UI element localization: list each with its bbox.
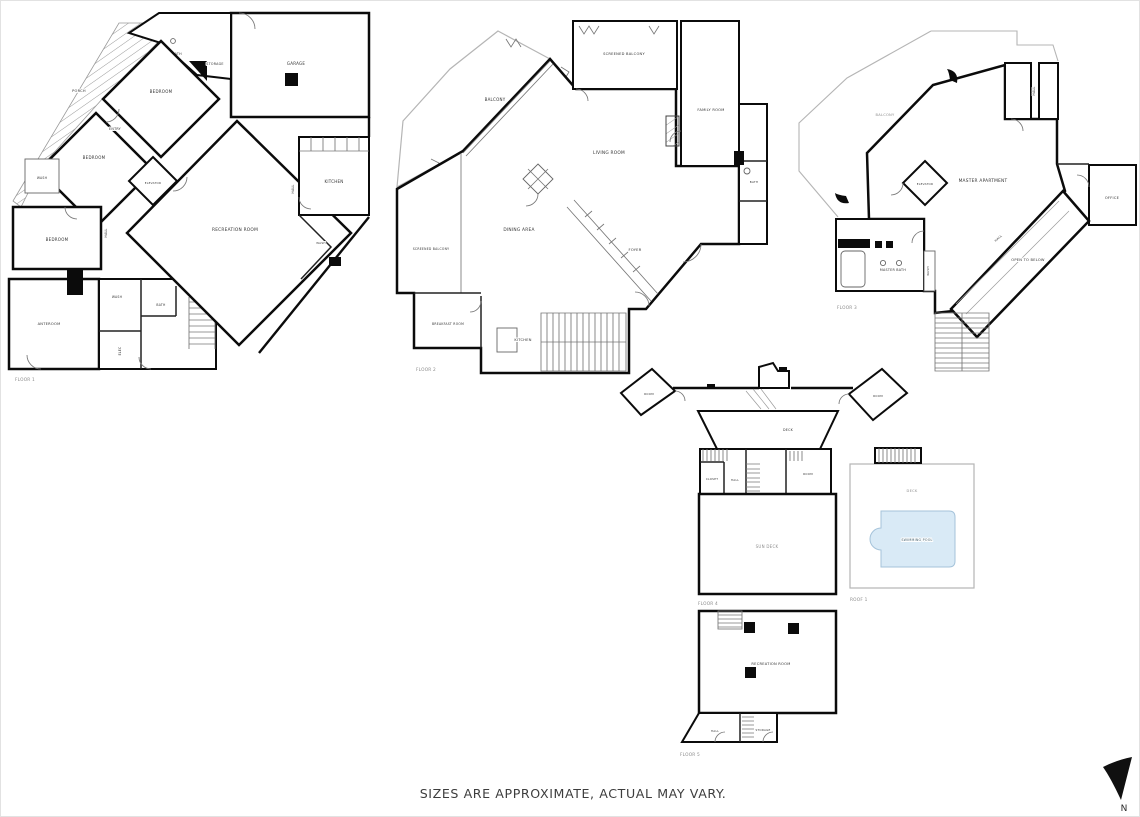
- room-label-wash-upper: WASH: [37, 176, 48, 180]
- column-c: [745, 667, 756, 678]
- room-label-balcony: BALCONY: [485, 97, 506, 102]
- room-label-porch: PORCH: [72, 89, 86, 93]
- bar-bump-walls: [759, 363, 789, 388]
- bath-fixture: [171, 39, 176, 44]
- room-label-bath-mid: BATH: [156, 303, 166, 307]
- room-label-breakfast-room: BREAKFAST ROOM: [432, 322, 464, 326]
- sink-a: [880, 260, 885, 265]
- room-label-elec: ELEC: [118, 347, 122, 356]
- room-label-deck-hall: DECK: [783, 428, 794, 432]
- floor2-caption: FLOOR 2: [416, 367, 436, 373]
- north-label: N: [1121, 804, 1128, 814]
- floor5-caption: FLOOR 5: [680, 752, 700, 758]
- compass: N: [1103, 757, 1132, 814]
- wall-tick-b: [779, 367, 787, 371]
- room-label-recreation: RECREATION ROOM: [212, 227, 258, 233]
- room-label-wash-right: WASH: [316, 241, 325, 245]
- room-label-hall: HALL: [731, 478, 739, 482]
- room-label-open-to-below: OPEN TO BELOW: [1011, 258, 1045, 262]
- room-label-storage: STORAGE: [206, 62, 223, 66]
- room-label-closet: CLOSET: [706, 477, 718, 481]
- room-label-office: OFFICE: [1105, 196, 1120, 200]
- room-label-master-apartment: MASTER APARTMENT: [959, 178, 1008, 184]
- room-label-room-small: ROOM: [803, 472, 813, 476]
- room-label-room-right: ROOM: [873, 394, 883, 398]
- room-label-storage: STORAGE: [755, 728, 770, 732]
- room-label-living-room: LIVING ROOM: [593, 150, 625, 156]
- roof-caption: ROOF 1: [850, 597, 868, 603]
- floor3-caption: FLOOR 3: [837, 305, 857, 311]
- counter-block: [838, 239, 870, 248]
- room-label-bedroom-mid: BEDROOM: [83, 155, 106, 160]
- room-label-screened-balcony-top: SCREENED BALCONY: [603, 52, 645, 56]
- column-a: [744, 622, 755, 633]
- cabinet-block-b: [886, 241, 893, 248]
- room-label-bedroom-lower: BEDROOM: [46, 237, 69, 242]
- room-label-hall-top: HALL: [1032, 87, 1036, 96]
- wall-chunk: [67, 269, 83, 295]
- room-label-family-room: FAMILY ROOM: [697, 108, 724, 112]
- room-label-deck: DECK: [907, 489, 918, 493]
- room-label-elevator: ELEVATOR: [145, 181, 161, 185]
- fireplace-hatch: [666, 116, 679, 146]
- family-room-walls: [681, 21, 739, 166]
- column-b: [788, 623, 799, 634]
- room-label-wash: WASH: [926, 266, 930, 275]
- hall-top-walls-b: [1039, 63, 1058, 119]
- sink-b: [896, 260, 901, 265]
- floor4-caption: FLOOR 4: [698, 601, 718, 607]
- north-arrow-icon: [1103, 757, 1132, 800]
- wall-tick-a: [707, 384, 715, 388]
- annex-walls: [739, 104, 767, 244]
- room-label-screened-balcony-left: SCREENED BALCONY: [413, 247, 450, 251]
- room-label-bath: BATH: [750, 180, 758, 184]
- roof-deck-plan: DECK SWIMMING POOL ROOF 1: [850, 448, 974, 603]
- room-label-entry: ENTRY: [109, 127, 122, 131]
- room-label-hall-left: HALL: [104, 229, 108, 238]
- toilet-fixture: [744, 168, 750, 174]
- deck-stairs-walls: [875, 448, 921, 463]
- door-arcs: [675, 391, 849, 404]
- room-label-bedroom-top: BEDROOM: [150, 89, 173, 94]
- room-label-master-bath: MASTER BATH: [880, 268, 906, 272]
- kitchen-walls: [299, 137, 369, 215]
- room-label-hall-right: HALL: [291, 185, 295, 194]
- room-label-kitchen: KITCHEN: [514, 338, 531, 342]
- cabinet-block-a: [875, 241, 882, 248]
- floor3-plan: BALCONY MASTER APARTMENT HALL OFFICE HAL…: [799, 31, 1136, 371]
- room-label-dining-area: DINING AREA: [503, 227, 534, 233]
- hall-top-walls-a: [1005, 63, 1031, 119]
- room-label-swimming-pool: SWIMMING POOL: [901, 538, 932, 542]
- deck-hall-walls: [698, 411, 838, 449]
- floor5-plan: RECREATION ROOM HALL STORAGE FLOOR 5: [680, 611, 836, 758]
- room-label-wash-mid: WASH: [112, 295, 123, 299]
- fixture-block: [329, 257, 341, 266]
- room-label-hall: HALL: [711, 729, 719, 733]
- office-walls: [1089, 165, 1136, 225]
- room-label-sun-deck: SUN DECK: [756, 544, 779, 549]
- room-label-balcony: BALCONY: [876, 113, 895, 117]
- room-label-elevator: ELEVATOR: [917, 182, 933, 186]
- room-label-recreation-room: RECREATION ROOM: [751, 662, 790, 666]
- disclaimer-text: SIZES ARE APPROXIMATE, ACTUAL MAY VARY.: [420, 786, 727, 801]
- floorplan-canvas: PORCH GARAGE BATH STORAGE BEDROOM BEDROO…: [1, 1, 1140, 817]
- floor1-plan: PORCH GARAGE BATH STORAGE BEDROOM BEDROO…: [9, 13, 369, 383]
- room-label-kitchen: KITCHEN: [324, 179, 343, 184]
- room-label-room-left: ROOM: [644, 392, 654, 396]
- room-label-anteroom: ANTEROOM: [38, 322, 61, 326]
- corner-glyph-b: [835, 193, 849, 203]
- floorplan-sheet: PORCH GARAGE BATH STORAGE BEDROOM BEDROO…: [0, 0, 1140, 817]
- room-label-foyer: FOYER: [629, 248, 642, 252]
- floor1-caption: FLOOR 1: [15, 377, 35, 383]
- floor2-plan: BALCONY SCREENED BALCONY FAMILY ROOM BAT…: [397, 21, 767, 373]
- room-label-garage: GARAGE: [287, 61, 305, 66]
- bathtub: [841, 251, 865, 287]
- wall-chunk: [734, 151, 744, 165]
- garage-column: [285, 73, 298, 86]
- ramp-lines: [746, 389, 776, 409]
